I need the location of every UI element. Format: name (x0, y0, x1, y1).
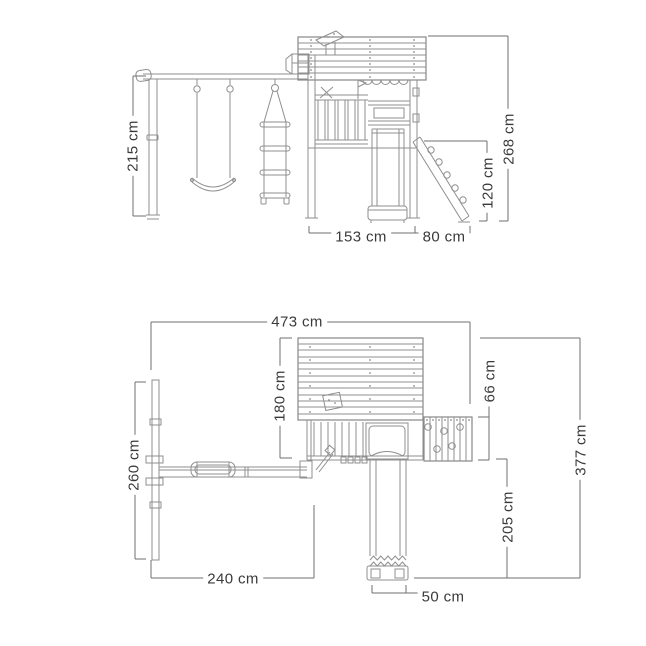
side-view-drawing (133, 31, 508, 233)
dim-label-wall-depth: 66 cm (482, 356, 499, 407)
plan-view-drawing (135, 322, 580, 593)
swing-post (146, 79, 160, 219)
dim-label-total-width: 473 cm (267, 314, 327, 331)
dim-line-66 (478, 403, 489, 460)
dim-label-swing-depth: 260 cm (126, 435, 143, 495)
platform-railing (308, 95, 417, 148)
dim-label-tower-depth: 180 cm (272, 366, 289, 426)
dim-label-total-depth: 377 cm (573, 420, 590, 480)
climbing-ramp-side (413, 137, 470, 222)
slide-plan (367, 460, 408, 580)
climbing-wall-plan (424, 417, 472, 461)
dim-label-ramp-height: 120 cm (480, 153, 497, 213)
porch-plan (300, 420, 423, 478)
dim-label-total-height: 268 cm (501, 109, 518, 169)
dim-label-slide-length: 205 cm (500, 487, 517, 547)
dim-label-tower-width: 153 cm (331, 229, 391, 246)
dim-line-50 (372, 585, 421, 593)
dim-label-slide-width: 50 cm (418, 589, 469, 606)
swing-beam (135, 69, 308, 82)
dim-label-ramp-width: 80 cm (419, 229, 470, 246)
rope-ladder (260, 79, 290, 204)
railing-toys (320, 80, 366, 99)
tower-roof-plan (298, 338, 423, 420)
scallop-trim (363, 80, 408, 85)
tower-wall (298, 37, 426, 80)
dim-line-120 (424, 141, 487, 221)
dim-label-swing-width: 240 cm (203, 571, 263, 588)
dimension-drawing: 215 cm 268 cm 120 cm 153 cm 80 cm 473 cm… (0, 0, 646, 646)
slide-side (368, 129, 407, 223)
swing (190, 79, 235, 191)
dim-label-swing-height: 215 cm (125, 116, 142, 176)
dim-line-240 (151, 505, 314, 578)
